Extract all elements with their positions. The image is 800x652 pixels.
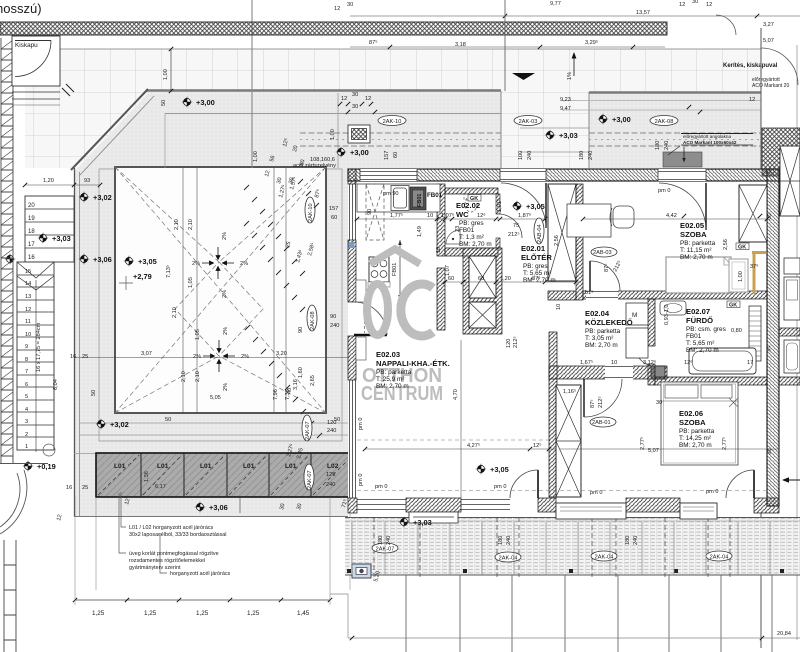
svg-text:7: 7 — [25, 369, 28, 375]
svg-text:pm 0: pm 0 — [706, 489, 718, 495]
svg-text:11: 11 — [25, 319, 31, 325]
svg-text:10: 10 — [436, 247, 442, 253]
svg-text:L01: L01 — [285, 463, 297, 470]
svg-text:PB: csm. gres: PB: csm. gres — [686, 326, 726, 333]
svg-text:E02.01: E02.01 — [521, 244, 546, 253]
svg-text:16: 16 — [66, 485, 72, 491]
svg-text:17: 17 — [747, 360, 753, 366]
svg-text:0,93-1,0: 0,93-1,0 — [664, 304, 670, 325]
svg-text:0,80: 0,80 — [731, 328, 742, 334]
svg-text:90: 90 — [367, 209, 373, 215]
svg-text:13,57: 13,57 — [636, 10, 650, 16]
svg-text:125: 125 — [326, 472, 335, 478]
svg-text:2AB-04: 2AB-04 — [537, 224, 543, 243]
svg-text:1,49: 1,49 — [417, 226, 423, 237]
svg-text:30x2 laposacélból, 33/33 borda: 30x2 laposacélból, 33/33 bordaosztással — [129, 532, 226, 538]
svg-text:4: 4 — [25, 407, 28, 413]
svg-text:E02.07: E02.07 — [686, 307, 710, 316]
svg-text:2%: 2% — [223, 383, 229, 391]
svg-text:FB01: FB01 — [427, 192, 443, 199]
svg-text:240: 240 — [326, 482, 335, 488]
svg-text:12: 12 — [706, 2, 712, 8]
svg-text:2,10: 2,10 — [172, 307, 178, 318]
svg-text:12⁶: 12⁶ — [684, 359, 693, 366]
svg-text:1,25: 1,25 — [92, 610, 105, 617]
svg-text:5,05: 5,05 — [210, 395, 221, 401]
svg-text:SZOBA: SZOBA — [680, 230, 707, 239]
svg-text:7,13⁵: 7,13⁵ — [165, 265, 172, 278]
svg-text:25: 25 — [82, 354, 88, 360]
svg-text:2,10: 2,10 — [181, 371, 187, 382]
svg-text:120: 120 — [327, 420, 336, 426]
svg-text:93: 93 — [84, 178, 90, 184]
svg-text:25: 25 — [82, 485, 88, 491]
svg-text:L01: L01 — [200, 463, 212, 470]
svg-text:PB: parketta: PB: parketta — [679, 428, 715, 435]
svg-text:2,10: 2,10 — [195, 371, 201, 382]
svg-text:1,20: 1,20 — [43, 178, 54, 184]
svg-text:+3,03: +3,03 — [559, 131, 578, 140]
svg-text:L01: L01 — [157, 463, 169, 470]
svg-text:3,27: 3,27 — [763, 22, 774, 28]
svg-text:+3,06: +3,06 — [93, 255, 112, 264]
svg-text:180: 180 — [655, 141, 661, 150]
svg-text:3,16: 3,16 — [293, 379, 299, 390]
svg-text:180: 180 — [498, 536, 504, 545]
svg-text:75: 75 — [513, 223, 519, 229]
svg-text:12: 12 — [365, 96, 371, 102]
svg-text:PB: gres: PB: gres — [523, 263, 548, 270]
svg-text:+3,03: +3,03 — [413, 518, 432, 527]
svg-text:16: 16 — [28, 255, 35, 261]
svg-text:87⁵: 87⁵ — [603, 263, 610, 272]
svg-text:GK: GK — [729, 303, 737, 309]
svg-text:50: 50 — [91, 390, 97, 396]
svg-text:20: 20 — [28, 203, 35, 209]
svg-text:horganyzott acél járórács: horganyzott acél járórács — [170, 571, 231, 577]
svg-text:+3,02: +3,02 — [93, 193, 112, 202]
svg-text:1,25: 1,25 — [144, 610, 157, 617]
svg-text:4,42: 4,42 — [666, 213, 677, 219]
svg-text:T: 3,05 m²: T: 3,05 m² — [585, 335, 613, 342]
svg-text:9,77: 9,77 — [550, 1, 561, 7]
svg-text:BM: 2,70 m: BM: 2,70 m — [459, 241, 492, 248]
svg-text:240: 240 — [386, 536, 392, 545]
svg-text:23: 23 — [455, 226, 461, 232]
svg-text:2,56: 2,56 — [723, 239, 729, 250]
svg-text:240: 240 — [664, 141, 670, 150]
svg-text:10: 10 — [427, 213, 433, 219]
svg-text:E02.06: E02.06 — [679, 409, 703, 418]
svg-text:E02.02: E02.02 — [456, 201, 480, 210]
svg-text:4,27⁵: 4,27⁵ — [467, 442, 480, 449]
svg-text:L02: L02 — [327, 463, 339, 470]
svg-text:30: 30 — [692, 0, 698, 5]
svg-text:2AK-03: 2AK-03 — [519, 119, 538, 125]
svg-text:10: 10 — [611, 360, 617, 366]
svg-text:240: 240 — [506, 536, 512, 545]
svg-text:2%: 2% — [192, 261, 200, 267]
svg-text:3,07: 3,07 — [141, 351, 152, 357]
svg-text:2AK-04: 2AK-04 — [710, 555, 729, 561]
svg-text:1,05: 1,05 — [188, 277, 194, 288]
svg-text:15: 15 — [25, 269, 31, 275]
svg-text:240: 240 — [633, 536, 639, 545]
svg-text:180: 180 — [579, 151, 585, 160]
svg-text:30: 30 — [352, 92, 358, 98]
svg-text:1,60: 1,60 — [298, 367, 304, 378]
svg-text:2%: 2% — [223, 327, 229, 335]
svg-text:12: 12 — [749, 97, 755, 103]
svg-text:acél zártszelvény: acél zártszelvény — [293, 163, 336, 169]
svg-text:240: 240 — [327, 428, 336, 434]
svg-text:1,25: 1,25 — [196, 610, 209, 617]
svg-text:L01: L01 — [114, 463, 126, 470]
svg-text:L01 / L02 horganyzott acél jár: L01 / L02 horganyzott acél járórács — [129, 525, 214, 531]
svg-text:2,65: 2,65 — [310, 375, 316, 386]
svg-text:60: 60 — [331, 215, 337, 221]
svg-text:50: 50 — [161, 100, 167, 106]
svg-text:BM: 2,70 m: BM: 2,70 m — [679, 442, 712, 449]
svg-text:FB01: FB01 — [686, 333, 702, 340]
svg-text:NAPPALI-KHA.-ÉTK.: NAPPALI-KHA.-ÉTK. — [376, 359, 450, 368]
svg-text:157: 157 — [384, 151, 390, 160]
svg-text:5,07: 5,07 — [763, 38, 774, 44]
svg-text:+3,05: +3,05 — [138, 257, 157, 266]
svg-text:SZOBA: SZOBA — [679, 418, 706, 427]
svg-text:rozsdamentes rögzítőelemekkel: rozsdamentes rögzítőelemekkel — [129, 558, 205, 564]
svg-text:18: 18 — [28, 229, 35, 235]
svg-text:9,47: 9,47 — [560, 106, 571, 112]
svg-text:16: 16 — [70, 354, 76, 360]
svg-text:240: 240 — [330, 323, 339, 329]
svg-text:1,07: 1,07 — [445, 265, 451, 276]
svg-text:40: 40 — [287, 388, 293, 394]
svg-text:M: M — [632, 312, 637, 319]
svg-text:BM: 2,70 m: BM: 2,70 m — [585, 342, 618, 349]
svg-text:1,00: 1,00 — [738, 271, 744, 282]
svg-text:120: 120 — [506, 339, 512, 348]
svg-text:16 x 17,75 = 284cm: 16 x 17,75 = 284cm — [36, 322, 42, 372]
svg-text:FB01: FB01 — [392, 263, 398, 276]
svg-text:pm 0: pm 0 — [494, 484, 506, 490]
svg-text:1,16⁵: 1,16⁵ — [563, 388, 576, 395]
svg-text:8: 8 — [25, 357, 28, 363]
svg-text:2,56: 2,56 — [554, 235, 560, 246]
svg-text:17: 17 — [28, 242, 35, 248]
svg-text:2AK-04: 2AK-04 — [595, 555, 614, 561]
svg-text:E02.05: E02.05 — [680, 221, 705, 230]
svg-text:PB: gres: PB: gres — [459, 220, 484, 227]
svg-text:5: 5 — [25, 394, 28, 400]
svg-text:1,87⁶: 1,87⁶ — [518, 212, 531, 219]
svg-text:4,70: 4,70 — [453, 389, 459, 400]
svg-text:pm 0: pm 0 — [358, 474, 364, 486]
svg-text:157: 157 — [329, 206, 338, 212]
svg-text:7,96: 7,96 — [273, 389, 279, 400]
svg-text:2AK-08: 2AK-08 — [310, 311, 316, 330]
svg-text:T: 1,3 m²: T: 1,3 m² — [459, 234, 484, 241]
svg-text:1,45: 1,45 — [297, 610, 310, 617]
svg-text:ACO Markant 20: ACO Markant 20 — [752, 83, 789, 89]
svg-text:PB: parketta: PB: parketta — [680, 240, 716, 247]
svg-text:1,00: 1,00 — [253, 151, 259, 162]
svg-text:GK: GK — [738, 245, 746, 251]
svg-text:T: 14,25 m²: T: 14,25 m² — [679, 435, 711, 442]
svg-text:üveg korlát pontmegfogással rö: üveg korlát pontmegfogással rögzítve — [129, 551, 219, 557]
svg-text:12: 12 — [341, 96, 347, 102]
svg-text:1,07⁶: 1,07⁶ — [441, 212, 454, 219]
svg-text:12: 12 — [25, 307, 31, 313]
svg-text:1,67⁵: 1,67⁵ — [580, 359, 593, 366]
svg-text:+3,00: +3,00 — [612, 115, 631, 124]
svg-text:180: 180 — [625, 536, 631, 545]
svg-text:1,25: 1,25 — [247, 610, 260, 617]
svg-text:9: 9 — [25, 344, 28, 350]
svg-text:180: 180 — [378, 536, 384, 545]
svg-text:BM: 2,70 m: BM: 2,70 m — [686, 347, 719, 354]
svg-text:1,20: 1,20 — [500, 276, 511, 282]
svg-text:240: 240 — [588, 151, 594, 160]
svg-text:1,01⁵: 1,01⁵ — [496, 199, 503, 212]
svg-text:2,77⁵: 2,77⁵ — [639, 437, 646, 450]
svg-text:előregyártott angolakna: előregyártott angolakna — [683, 134, 731, 139]
svg-text:60: 60 — [393, 152, 399, 158]
svg-text:14: 14 — [25, 281, 31, 287]
svg-text:2%: 2% — [241, 354, 249, 360]
svg-text:30: 30 — [352, 104, 358, 110]
svg-text:1: 1 — [25, 444, 28, 450]
svg-text:2AK-10: 2AK-10 — [308, 203, 314, 222]
svg-text:1,77⁵: 1,77⁵ — [390, 212, 403, 219]
svg-text:30: 30 — [656, 400, 662, 406]
svg-text:1%: 1% — [567, 72, 573, 80]
svg-text:PB: parketta: PB: parketta — [376, 369, 412, 376]
svg-text:3: 3 — [25, 419, 28, 425]
svg-text:100: 100 — [518, 151, 524, 160]
svg-text:12: 12 — [679, 2, 685, 8]
svg-text:212⁵: 212⁵ — [597, 396, 604, 408]
svg-text:2AB-01: 2AB-01 — [592, 420, 611, 426]
svg-text:87⁵: 87⁵ — [369, 39, 378, 46]
svg-text:+3,00: +3,00 — [196, 98, 215, 107]
svg-text:BM: 2,70 m: BM: 2,70 m — [376, 383, 409, 390]
svg-text:60: 60 — [478, 276, 484, 282]
svg-text:+3,05: +3,05 — [490, 465, 509, 474]
svg-text:1,00: 1,00 — [163, 69, 169, 80]
svg-text:FB01: FB01 — [459, 227, 475, 234]
svg-text:pm 0: pm 0 — [358, 418, 364, 430]
svg-text:9,23: 9,23 — [560, 97, 571, 103]
svg-text:T: 11,15 m²: T: 11,15 m² — [680, 247, 712, 254]
svg-text:+3,03: +3,03 — [52, 234, 71, 243]
svg-text:pm 0: pm 0 — [375, 484, 387, 490]
svg-text:20,84: 20,84 — [777, 631, 791, 637]
svg-text:2%: 2% — [222, 232, 228, 240]
svg-text:pm 0: pm 0 — [590, 490, 602, 496]
svg-text:90: 90 — [330, 314, 336, 320]
svg-text:E02.03: E02.03 — [376, 350, 400, 359]
svg-text:2,77⁵: 2,77⁵ — [721, 437, 728, 450]
svg-text:+3,05: +3,05 — [526, 202, 545, 211]
svg-text:KÖZLEKEDŐ: KÖZLEKEDŐ — [585, 318, 633, 327]
svg-text:6: 6 — [25, 382, 28, 388]
svg-text:hosszú): hosszú) — [0, 1, 42, 16]
svg-text:1,36: 1,36 — [144, 471, 150, 482]
svg-text:51⁵: 51⁵ — [585, 289, 594, 296]
svg-text:2,10: 2,10 — [188, 219, 194, 230]
svg-text:+3,00: +3,00 — [350, 148, 369, 157]
svg-text:pm 0: pm 0 — [658, 188, 670, 194]
svg-text:2%: 2% — [222, 290, 228, 298]
svg-text:6,04: 6,04 — [53, 379, 59, 390]
svg-text:pm 90: pm 90 — [383, 191, 399, 197]
svg-text:2%: 2% — [240, 261, 248, 267]
svg-text:+3,02: +3,02 — [110, 420, 129, 429]
svg-text:+3,06: +3,06 — [209, 503, 228, 512]
svg-text:ACO Markant 100x60x42: ACO Markant 100x60x42 — [683, 140, 737, 145]
svg-text:87⁶: 87⁶ — [532, 275, 541, 282]
svg-text:19: 19 — [28, 216, 35, 222]
svg-text:PB: parketta: PB: parketta — [585, 328, 621, 335]
svg-text:37⁶: 37⁶ — [750, 263, 759, 270]
svg-text:5,07: 5,07 — [648, 448, 659, 454]
svg-text:L01: L01 — [243, 463, 255, 470]
svg-text:2,10: 2,10 — [174, 219, 180, 230]
svg-text:10: 10 — [25, 332, 31, 338]
svg-text:2AK-07: 2AK-07 — [305, 421, 311, 440]
svg-text:+2,79: +2,79 — [133, 272, 152, 281]
svg-text:3,20: 3,20 — [276, 351, 287, 357]
svg-text:WC: WC — [456, 210, 469, 219]
svg-text:212⁵: 212⁵ — [512, 336, 519, 348]
svg-text:E02.04: E02.04 — [585, 309, 610, 318]
svg-text:12: 12 — [334, 6, 340, 12]
svg-text:13: 13 — [25, 294, 31, 300]
svg-text:2AB-03: 2AB-03 — [593, 250, 612, 256]
svg-text:2AK-04: 2AK-04 — [499, 556, 518, 562]
svg-text:BM: 2,70 m: BM: 2,70 m — [680, 254, 713, 261]
svg-text:2AK-08: 2AK-08 — [655, 119, 674, 125]
svg-text:90: 90 — [298, 327, 304, 333]
svg-text:T: 25,9 m²: T: 25,9 m² — [376, 376, 404, 383]
svg-text:6,17: 6,17 — [155, 484, 166, 490]
svg-text:2: 2 — [25, 432, 28, 438]
svg-text:Kiskapu: Kiskapu — [15, 42, 38, 49]
svg-text:30: 30 — [347, 2, 353, 8]
svg-text:3,29⁵: 3,29⁵ — [585, 39, 598, 46]
svg-text:2AK-10: 2AK-10 — [383, 119, 402, 125]
svg-text:87⁵: 87⁵ — [589, 399, 596, 408]
svg-text:T: 5,65 m²: T: 5,65 m² — [686, 340, 714, 347]
svg-text:12⁶: 12⁶ — [477, 212, 486, 219]
svg-text:3,12⁶: 3,12⁶ — [643, 359, 656, 366]
svg-text:10: 10 — [556, 304, 562, 310]
svg-text:2AK-07: 2AK-07 — [307, 470, 313, 489]
svg-text:FB01: FB01 — [417, 194, 423, 207]
svg-text:1,05: 1,05 — [195, 329, 201, 340]
svg-text:50: 50 — [165, 417, 171, 423]
svg-text:12⁵: 12⁵ — [533, 442, 542, 449]
svg-text:212⁵: 212⁵ — [508, 231, 520, 238]
svg-text:1,00: 1,00 — [330, 129, 336, 140]
svg-text:240: 240 — [527, 151, 533, 160]
svg-text:FÜRDŐ: FÜRDŐ — [686, 316, 713, 325]
svg-text:Kerítés, kiskapuval: Kerítés, kiskapuval — [723, 63, 778, 69]
svg-text:ELŐTÉR: ELŐTÉR — [521, 253, 552, 262]
